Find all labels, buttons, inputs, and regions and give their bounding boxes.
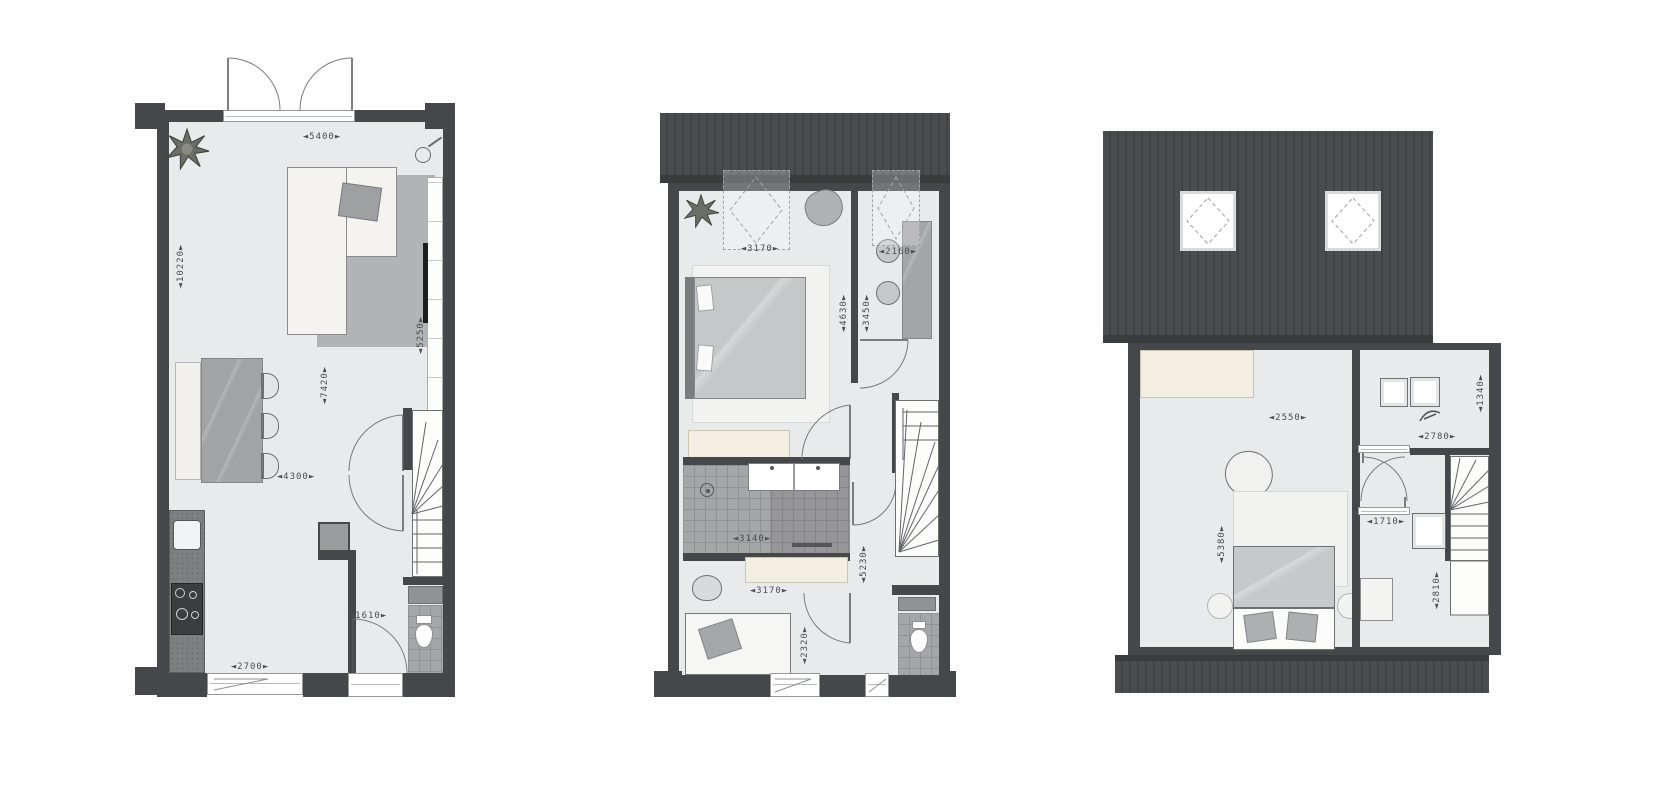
wall [443, 122, 455, 673]
nightstand [1207, 593, 1233, 619]
bath-bench [792, 543, 832, 547]
duct [898, 597, 936, 611]
wall [668, 675, 770, 697]
dim-label: ◄2160► [879, 247, 918, 257]
pillow [1243, 611, 1277, 643]
wall [820, 675, 865, 697]
wall [1489, 343, 1501, 655]
desk-lamp-icon [1418, 405, 1442, 423]
wall [668, 183, 679, 675]
wall [303, 673, 348, 697]
dim-label: ◄2320► [800, 626, 810, 665]
pillow [696, 284, 715, 312]
wall [157, 110, 225, 122]
dim-label: ◄10220► [176, 244, 186, 289]
wall [939, 183, 950, 675]
kitchen-sink [173, 520, 201, 550]
dim-label: ◄5230► [859, 545, 869, 584]
door [800, 403, 852, 461]
wardrobe [1140, 350, 1254, 398]
dim-label: ◄3140► [733, 534, 772, 544]
dining-table [201, 358, 263, 483]
dim-label: ◄3450► [862, 294, 872, 333]
wall [157, 122, 169, 673]
door [349, 413, 407, 473]
dim-label: ◄5400► [303, 132, 342, 142]
attic-floor-plan: ◄2550► ◄2780► ◄1340► ◄5380► ◄1710► ◄2810… [1103, 131, 1503, 731]
dim-label: ◄4300► [277, 472, 316, 482]
pillow [1286, 612, 1319, 643]
burner [176, 608, 188, 620]
first-floor-plan: ◄3170► ◄2160► ◄4630► ◄3450► ◄3140► ◄5230… [640, 113, 950, 703]
wall [1128, 343, 1489, 350]
desk-chair [692, 575, 722, 601]
dim-label: ◄2810► [1432, 571, 1442, 610]
bedroom2-window [770, 673, 820, 697]
door [349, 475, 407, 533]
double-bed-blanket [1233, 546, 1335, 608]
wall-pier [135, 667, 165, 695]
dim-label: ◄1610► [349, 611, 388, 621]
dormer-window [723, 170, 790, 250]
dining-bench [175, 362, 201, 480]
dim-label: ◄2550► [1269, 413, 1308, 423]
media-cabinet [427, 177, 443, 417]
dim-label: ◄2700► [231, 662, 270, 672]
desk-unit [1380, 378, 1408, 407]
wall [851, 191, 858, 383]
skylight [1180, 191, 1236, 251]
dormer-window [872, 170, 920, 246]
dim-label: ◄4630► [839, 294, 849, 333]
pillow [696, 344, 714, 371]
dim-label: ◄3170► [741, 244, 780, 254]
dim-label: ◄5250► [416, 316, 426, 355]
wall [403, 577, 455, 585]
desk-unit [1410, 377, 1440, 407]
wall [318, 552, 350, 560]
floor-plan-sheet: ◄5400► ◄10220► ◄5250► ◄7420► ◄4300► ◄161… [0, 0, 1680, 803]
double-bed-headboard [685, 277, 694, 399]
double-door [1359, 451, 1409, 509]
wardrobe [745, 557, 848, 583]
french-doors [223, 53, 357, 111]
kitchen-window [207, 673, 303, 695]
toilet [912, 621, 926, 629]
wall [1410, 448, 1489, 455]
faucet [816, 466, 820, 470]
shaft [318, 522, 350, 552]
roof-bottom [1115, 661, 1489, 693]
burner [175, 588, 185, 598]
dim-label: ◄1340► [1476, 374, 1486, 413]
wall [892, 585, 940, 595]
burner [191, 611, 199, 619]
faucet [770, 466, 774, 470]
dim-label: ◄7420► [320, 366, 330, 405]
wardrobe [688, 430, 790, 459]
dryer [1360, 578, 1393, 621]
roof-eave [1103, 335, 1433, 343]
dim-label: ◄1710► [1367, 517, 1406, 527]
dim-label: ◄5380► [1217, 525, 1227, 564]
sofa-cushion [338, 182, 382, 221]
plant-icon [683, 193, 719, 229]
toilet-window [865, 673, 889, 697]
shower-drain [706, 489, 710, 493]
burner [189, 591, 197, 599]
desk-chair [876, 281, 900, 305]
toilet [416, 615, 432, 624]
duct [408, 586, 443, 604]
dim-label: ◄3170► [750, 586, 789, 596]
staircase [895, 400, 939, 557]
wall [1128, 343, 1140, 655]
ground-floor-plan: ◄5400► ◄10220► ◄5250► ◄7420► ◄4300► ◄161… [135, 55, 455, 655]
skylight [1325, 191, 1381, 251]
washer [1412, 513, 1446, 549]
staircase [412, 410, 443, 577]
roof-top [1103, 131, 1433, 343]
staircase [1450, 456, 1489, 616]
floor-lamp-icon [415, 147, 431, 163]
front-door [349, 615, 405, 673]
front-door-threshold [348, 673, 403, 697]
plant-icon [165, 127, 209, 171]
wall-pier [654, 671, 682, 697]
corner-sofa [287, 167, 347, 335]
dim-label: ◄2780► [1418, 432, 1457, 442]
tv [423, 243, 428, 323]
vanity [748, 463, 840, 491]
french-door-opening [223, 110, 355, 122]
door [858, 338, 906, 388]
